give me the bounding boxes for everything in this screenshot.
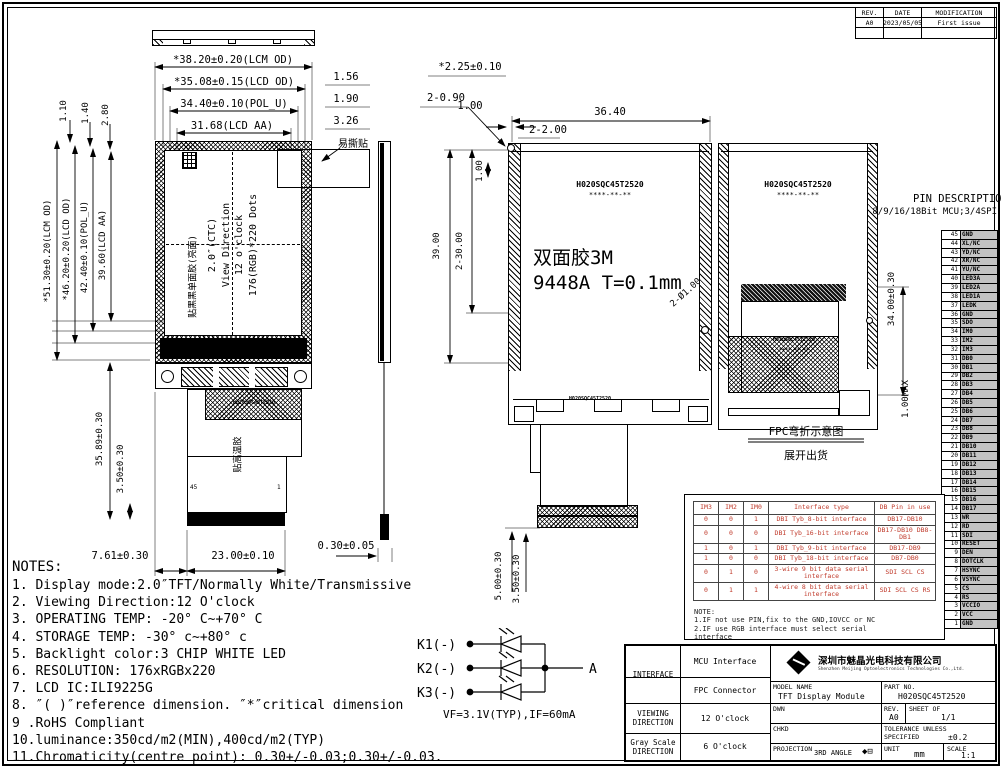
adhesive-text-line1: 双面胶3M	[533, 243, 613, 270]
note-item: 2. Viewing Direction:12 O'clock	[12, 595, 492, 612]
dim-thickness: 0.30±0.05	[310, 541, 382, 552]
pin-name: IM3	[961, 346, 998, 354]
mounting-tab-row	[155, 363, 312, 389]
dim-3640: 36.40	[570, 107, 650, 118]
note-item: 11.Chromaticity(centre point): 0.30+/-0.…	[12, 750, 492, 767]
pin-name: DEN	[961, 549, 998, 557]
unit-value: mm	[914, 750, 925, 760]
pin-number: 28	[941, 381, 961, 389]
pin-name: YD/NC	[961, 249, 998, 257]
dim-100-top: 1.00	[450, 101, 490, 112]
back-fpc-body	[540, 425, 628, 507]
top-profile-view	[152, 30, 315, 46]
tolerance-value: ±0.2	[948, 733, 967, 742]
pin-row: 40 LED3A	[941, 275, 998, 284]
pin-name: YU/NC	[961, 266, 998, 274]
k3-label: K3(-)	[417, 686, 456, 701]
pin-number: 32	[941, 346, 961, 354]
pin-name: DB6	[961, 408, 998, 416]
pin-name: LEDK	[961, 302, 998, 310]
pin-row: 1 GND	[941, 620, 998, 629]
dim-thickness-225: *2.25±0.10	[430, 62, 510, 73]
pin-name: VCCIO	[961, 602, 998, 610]
dim-lcd-height: *46.20±0.20(LCD OD)	[62, 169, 72, 329]
unfold-fpc-marking1: H020SQC45T2520	[748, 337, 840, 343]
unfold-fpc-stiffener	[728, 336, 839, 393]
pin-number: 45	[941, 231, 961, 239]
pin-row: 34 IM0	[941, 328, 998, 337]
dim-2-3000: 2-30.00	[455, 221, 465, 281]
unfold-marking-date: ****-**-**	[748, 191, 848, 199]
pin-number: 26	[941, 399, 961, 407]
adhesive-text-line2: 9448A T=0.1mm	[533, 272, 682, 294]
pin-name: DB0	[961, 355, 998, 363]
pin-name: IM2	[961, 337, 998, 345]
pin-row: 25 DB6	[941, 408, 998, 417]
alignment-mark-icon	[182, 152, 197, 169]
pin-row: 10 RESET	[941, 541, 998, 550]
gray-scale-value: 6 O'clock	[680, 733, 770, 760]
dim-lcm-height: *51.30±0.20(LCM OD)	[43, 171, 53, 331]
dim-offset-2: 1.90	[326, 94, 366, 105]
pin-number: 22	[941, 434, 961, 442]
pin-name: DB11	[961, 452, 998, 460]
pin-name: RESET	[961, 541, 998, 549]
pin-row: 31 DB0	[941, 355, 998, 364]
dim-pol-height: 42.40±0.10(POL_U)	[80, 172, 90, 322]
pin-number: 38	[941, 293, 961, 301]
rev-header: REV.	[856, 8, 884, 18]
front-fpc-marking: H020SQC45T2520	[208, 400, 300, 406]
screen-view-direction: View Direction	[220, 152, 234, 338]
pin-row: 6 VSYNC	[941, 576, 998, 585]
led-circuit-lines	[467, 628, 583, 700]
pin-number: 20	[941, 452, 961, 460]
dim-top-1: 1.10	[59, 91, 69, 131]
pin-name: DB3	[961, 381, 998, 389]
pin-row: 18 DB13	[941, 470, 998, 479]
im0-header: IM0	[744, 502, 769, 515]
pin-row: 5 CS	[941, 585, 998, 594]
pin-number: 30	[941, 364, 961, 372]
pin-description-subtitle: 8/9/16/18Bit MCU;3/4SPI	[872, 207, 997, 217]
pin-row: 44 XL/NC	[941, 240, 998, 249]
dim-500: 5.00±0.30	[494, 537, 504, 615]
pin-number: 44	[941, 240, 961, 248]
pin-name: XR/NC	[961, 258, 998, 266]
pin-row: 4 RS	[941, 594, 998, 603]
pin-name: LED1A	[961, 293, 998, 301]
pin-row: 15 DB16	[941, 496, 998, 505]
pin-name: DB12	[961, 461, 998, 469]
dim-offset-1: 1.56	[326, 72, 366, 83]
pin-name: DB2	[961, 373, 998, 381]
part-no-label: PART NO.	[884, 683, 915, 691]
pin-name: RD	[961, 523, 998, 531]
company-logo-icon	[786, 650, 810, 674]
pin-row: 11 SDI	[941, 532, 998, 541]
tear-sticker-outline	[277, 149, 370, 188]
dim-lcd-width: *35.08±0.15(LCD OD)	[164, 77, 304, 88]
interface-notes: 1.IF not use PIN,fix to the GND,IOVCC or…	[694, 616, 875, 642]
tolerance-label-1: TOLERANCE UNLESS	[884, 725, 947, 733]
interface-table-row: 1 0 0 DBI Tyb_18-bit interface DB7-DB0	[694, 554, 936, 565]
pin-number: 40	[941, 275, 961, 283]
pin-name: GND	[961, 620, 998, 628]
viewing-direction-value: 12 O'clock	[680, 703, 770, 733]
pin-name: DB13	[961, 470, 998, 478]
pin-name: VCC	[961, 611, 998, 619]
pin-name: DB14	[961, 479, 998, 487]
unit-label: UNIT	[884, 745, 900, 753]
unfold-hole	[866, 317, 873, 324]
dim-top-2: 1.40	[81, 93, 91, 133]
interface-table-row: 0 0 1 DBI Tyb_8-bit interface DB17-DB10	[694, 515, 936, 526]
pin-row: 37 LEDK	[941, 302, 998, 311]
projection-value: 3RD ANGLE	[814, 749, 852, 757]
pin-name: DB10	[961, 443, 998, 451]
interface-note-line: 2.IF use RGB interface must select seria…	[694, 625, 875, 634]
pin-number: 19	[941, 461, 961, 469]
screen-size: 2.0″(CTC)	[206, 152, 220, 338]
pin-number: 21	[941, 443, 961, 451]
model-name-label: MODEL NAME	[773, 683, 812, 691]
pin-row: 45 GND	[941, 231, 998, 240]
dim-unfold-height: 34.00±0.30	[887, 256, 897, 342]
fpc-pin1-label: 1	[277, 484, 281, 491]
note-item: 1. Display mode:2.0″TFT/Normally White/T…	[12, 578, 492, 595]
interface-note-line: interface	[694, 633, 875, 642]
pin-number: 25	[941, 408, 961, 416]
interface-table-row: 0 1 1 4-wire 8 bit data serial interface…	[694, 583, 936, 601]
fpc-fold-caption: FPC弯折示意图	[748, 423, 864, 439]
dim-fpc-offset: 7.61±0.30	[85, 551, 155, 562]
pin-name: HSYNC	[961, 567, 998, 575]
tolerance-label-2: SPECIFIED	[884, 733, 919, 741]
pin-row: 29 DB2	[941, 373, 998, 382]
screw-hole-top-left	[507, 144, 515, 152]
dim-aa-height: 39.60(LCD AA)	[98, 185, 108, 305]
pin-row: 7 HSYNC	[941, 567, 998, 576]
pin-number: 17	[941, 479, 961, 487]
dim-3900: 39.00	[432, 224, 442, 268]
viewing-direction-label: VIEWING DIRECTION	[626, 703, 680, 733]
modification-header: MODIFICATION	[922, 8, 996, 18]
modification-value: First issue	[922, 18, 996, 28]
k1-label: K1(-)	[417, 638, 456, 653]
fpc-pin45-label: 45	[190, 484, 197, 491]
backlight-circuit: K1(-) K2(-) K3(-) A VF=3.1V(TYP),IF=60mA	[415, 628, 650, 728]
rev-value: A0	[856, 18, 884, 28]
pin-name: XL/NC	[961, 240, 998, 248]
fpc-ship-caption: 展开出货	[764, 447, 848, 463]
interface-table-row: 0 1 0 3-wire 9 bit data serial interface…	[694, 565, 936, 583]
pin-name: DB4	[961, 390, 998, 398]
im3-header: IM3	[694, 502, 719, 515]
sheet-value: 1/1	[941, 713, 955, 722]
back-marking-partno: H020SQC45T2520	[560, 180, 660, 189]
dim-350: 3.50±0.30	[512, 540, 522, 618]
pin-name: RS	[961, 594, 998, 602]
pin-row: 27 DB4	[941, 390, 998, 399]
pin-row: 42 XR/NC	[941, 258, 998, 267]
pin-name: GND	[961, 311, 998, 319]
pin-row: 19 DB12	[941, 461, 998, 470]
pin-number: 37	[941, 302, 961, 310]
pin-number: 24	[941, 417, 961, 425]
dim-top-3: 2.80	[101, 95, 111, 135]
high-temp-tape-label: 贴高温胶	[231, 423, 244, 487]
pin-row: 30 DB1	[941, 364, 998, 373]
screen-resolution: 176(RGB)*220 Dots	[247, 152, 261, 338]
date-value: 2023/05/05	[884, 18, 922, 28]
model-name-value: TFT Display Module	[778, 692, 865, 701]
back-fpc-marking: H020SQC45T2520	[560, 396, 620, 402]
db-pin-header: DB Pin in use	[875, 502, 936, 515]
pin-number: 34	[941, 328, 961, 336]
pin-row: 43 YD/NC	[941, 249, 998, 258]
pin-row: 36 GND	[941, 311, 998, 320]
mounting-hole-right	[294, 370, 307, 383]
notes-title: NOTES:	[12, 559, 63, 575]
pin-row: 33 IM2	[941, 337, 998, 346]
revision-table-row: A0 2023/05/05 First issue	[856, 18, 996, 28]
pin-description-title: PIN DESCRIPTION	[913, 193, 997, 205]
pin-table: 45 GND 44 XL/NC 43 YD/NC 42 XR/NC 41 YU/…	[941, 230, 998, 629]
dim-pol-width: 34.40±0.10(POL_U)	[168, 99, 300, 110]
interface-table-header: IM3 IM2 IM0 Interface type DB Pin in use	[694, 502, 936, 515]
pin-row: 12 RD	[941, 523, 998, 532]
projection-label: PROJECTION	[773, 745, 812, 753]
third-angle-symbol-icon: ◆⊟	[862, 747, 873, 757]
pin-number: 33	[941, 337, 961, 345]
company-name-cn: 深圳市魅晶光电科技有限公司	[818, 653, 942, 667]
k2-label: K2(-)	[417, 662, 456, 677]
interface-type-header: Interface type	[769, 502, 875, 515]
bottom-ledge	[160, 338, 307, 359]
pin-number: 23	[941, 426, 961, 434]
pin-row: 22 DB9	[941, 434, 998, 443]
interface-table-row: 0 0 0 DBI Tyb_16-bit interface DB17-DB10…	[694, 526, 936, 544]
dim-fold-max: 1.00MAX	[901, 372, 911, 426]
revision-table: REV. DATE MODIFICATION A0 2023/05/05 Fir…	[855, 7, 997, 39]
pin-name: DB5	[961, 399, 998, 407]
interface-table-rows: 0 0 1 DBI Tyb_8-bit interface DB17-DB10 …	[694, 515, 936, 601]
pin-row: 39 LED2A	[941, 284, 998, 293]
im2-header: IM2	[719, 502, 744, 515]
interface-mode-box: IM3 IM2 IM0 Interface type DB Pin in use…	[684, 494, 945, 640]
pin-row: 14 DB17	[941, 505, 998, 514]
interface-row-fpc: FPC Connector	[680, 677, 770, 703]
dim-fpc-length: 35.89±0.30	[95, 394, 105, 484]
dim-100-left: 1.00	[475, 153, 485, 189]
pin-name: SDO	[961, 319, 998, 327]
pin-name: DB16	[961, 496, 998, 504]
led-spec: VF=3.1V(TYP),IF=60mA	[443, 708, 576, 721]
black-tape-label: 贴黑黑单面胶(亮面)	[186, 202, 199, 352]
pin-number: 36	[941, 311, 961, 319]
chkd-label: CHKD	[773, 725, 789, 733]
interface-label: INTERFACE	[626, 646, 680, 703]
unfold-fpc-top-bar	[741, 284, 846, 301]
pin-row: 9 DEN	[941, 549, 998, 558]
pin-row: 21 DB10	[941, 443, 998, 452]
part-no-value: H020SQC45T2520	[898, 692, 965, 701]
pin-name: DB17	[961, 505, 998, 513]
pin-name: DB15	[961, 487, 998, 495]
pin-row: 41 YU/NC	[941, 266, 998, 275]
pin-name: CS	[961, 585, 998, 593]
pin-name: LED3A	[961, 275, 998, 283]
pin-row: 13 WR	[941, 514, 998, 523]
screen-clock: 12 o'clock	[233, 152, 247, 338]
pin-name: VSYNC	[961, 576, 998, 584]
title-block: INTERFACE MCU Interface FPC Connector VI…	[624, 644, 997, 762]
pin-row: 32 IM3	[941, 346, 998, 355]
unfold-marking-partno: H020SQC45T2520	[748, 180, 848, 189]
pin-name: LED2A	[961, 284, 998, 292]
pin-number: 42	[941, 258, 961, 266]
pin-number: 43	[941, 249, 961, 257]
pin-number: 31	[941, 355, 961, 363]
pin-number: 35	[941, 319, 961, 327]
dim-connector-height: 3.50±0.30	[116, 429, 126, 509]
pin-name: DOTCLK	[961, 558, 998, 566]
dim-connector-width: 23.00±0.10	[200, 551, 286, 562]
rev-value: A0	[889, 713, 899, 722]
pin-row: 2 VCC	[941, 611, 998, 620]
engineering-drawing-sheet: REV. DATE MODIFICATION A0 2023/05/05 Fir…	[0, 0, 1002, 768]
pin-row: 16 DB15	[941, 487, 998, 496]
side-profile-connector	[380, 514, 389, 540]
pin-number: 29	[941, 373, 961, 381]
pin-row: 38 LED1A	[941, 293, 998, 302]
pin-row: 8 DOTCLK	[941, 558, 998, 567]
interface-row-mcu: MCU Interface	[680, 646, 770, 677]
pin-number: 39	[941, 284, 961, 292]
pin-name: GND	[961, 231, 998, 239]
rev-label: REV.	[884, 705, 900, 713]
back-fpc-connector	[537, 505, 638, 528]
tear-sticker-label: 易撕贴	[338, 135, 368, 150]
sheet-label: SHEET OF	[909, 705, 940, 713]
pin-row: 20 DB11	[941, 452, 998, 461]
dwn-label: DWN	[773, 705, 785, 713]
back-marking-date: ****-**-**	[560, 191, 660, 199]
interface-mode-table: IM3 IM2 IM0 Interface type DB Pin in use…	[693, 501, 936, 601]
side-profile-view	[378, 141, 391, 363]
pin-row: 28 DB3	[941, 381, 998, 390]
pin-row: 35 SDO	[941, 319, 998, 328]
pin-name: IM0	[961, 328, 998, 336]
interface-note-line: 1.IF not use PIN,fix to the GND,IOVCC or…	[694, 616, 875, 625]
revision-table-empty-row	[856, 28, 996, 38]
pin-name: DB9	[961, 434, 998, 442]
date-header: DATE	[884, 8, 922, 18]
anode-label: A	[589, 662, 597, 677]
pin-number: 41	[941, 266, 961, 274]
pin-name: DB1	[961, 364, 998, 372]
pin-name: DB8	[961, 426, 998, 434]
pin-row: 24 DB7	[941, 417, 998, 426]
revision-table-header: REV. DATE MODIFICATION	[856, 8, 996, 18]
pin-name: DB7	[961, 417, 998, 425]
unfold-fpc-marking2: ****-**-**	[748, 348, 840, 354]
dim-aa-width: 31.68(LCD AA)	[172, 121, 292, 132]
mounting-hole-left	[161, 370, 174, 383]
dim-2-200: 2-2.00	[522, 125, 574, 136]
pin-row: 17 DB14	[941, 479, 998, 488]
company-name-en: Shenzhen Meijing Optoelectronics Technol…	[818, 667, 964, 672]
screen-center-text: 2.0″(CTC) View Direction 12 o'clock 176(…	[206, 152, 264, 338]
pin-number: 18	[941, 470, 961, 478]
screw-hole-right	[701, 326, 709, 334]
interface-table-row: 1 0 1 DBI Tyb_9-bit interface DB17-DB9	[694, 544, 936, 555]
gray-scale-label: Gray Scale DIRECTION	[626, 733, 680, 760]
scale-value: 1:1	[961, 751, 975, 760]
pin-number: 27	[941, 390, 961, 398]
front-fpc-connector	[187, 512, 285, 526]
dim-offset-3: 3.26	[326, 116, 366, 127]
pin-row: 3 VCCIO	[941, 602, 998, 611]
pin-row: 26 DB5	[941, 399, 998, 408]
note-item: 3. OPERATING TEMP: -20° C~+70° C	[12, 612, 492, 629]
dim-lcm-width: *38.20±0.20(LCM OD)	[163, 55, 303, 66]
pin-name: SDI	[961, 532, 998, 540]
pin-name: WR	[961, 514, 998, 522]
note-item: 10.luminance:350cd/m2(MIN),400cd/m2(TYP)	[12, 733, 492, 750]
pin-row: 23 DB8	[941, 426, 998, 435]
